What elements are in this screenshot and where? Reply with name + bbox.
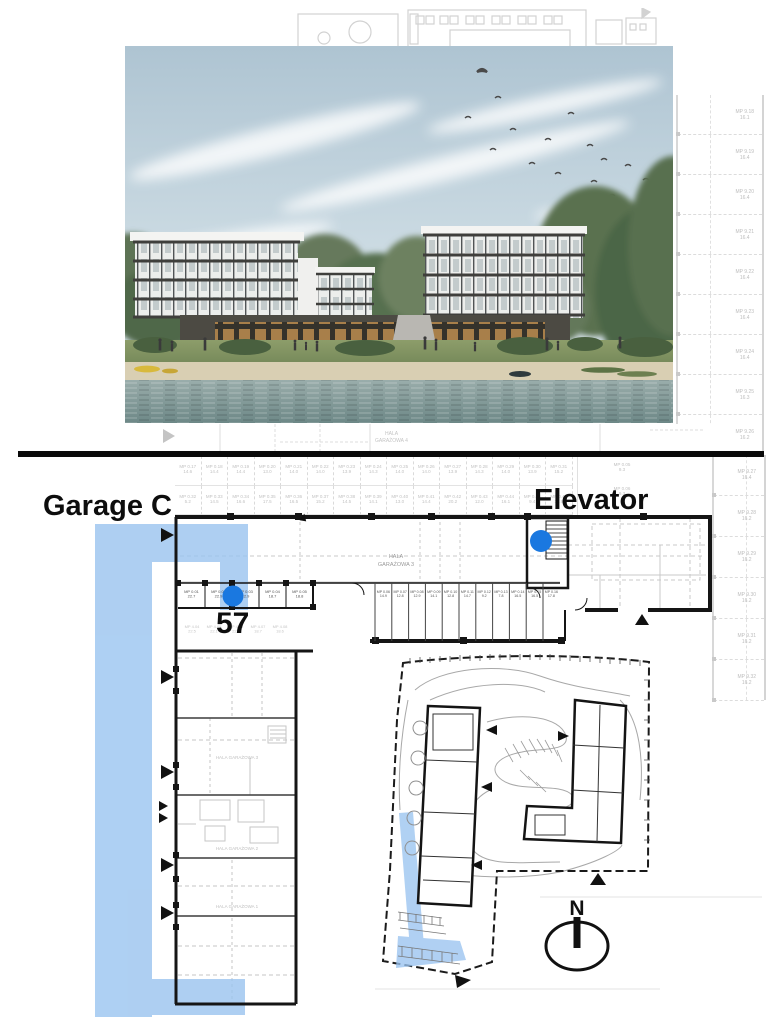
parking-space-label: MP 4.0422.5 [185, 624, 201, 634]
corridor-label-2: GARAŻOWA 3 [378, 561, 414, 568]
elevator-label: Elevator [534, 484, 648, 517]
right-building [421, 226, 587, 318]
garage-c-label: Garage C [43, 490, 172, 523]
wing-hall-label: HALA GARAŻOWA 2 [216, 845, 259, 851]
north-compass: N [546, 897, 608, 970]
space-57-label: 57 [216, 607, 249, 641]
section-divider-line [18, 451, 764, 457]
elevator-marker [530, 530, 552, 552]
left-building [130, 232, 304, 318]
parking-space-label: MP 4.0718.7 [251, 624, 267, 634]
building-rendering-photo [125, 46, 673, 423]
wing-hall-label: HALA GARAŻOWA 3 [216, 754, 259, 760]
corridor-label-1: HALA [389, 554, 404, 560]
mid-building [315, 267, 375, 318]
compass-north-label: N [569, 897, 584, 920]
parking-space-57-marker [223, 586, 244, 607]
parking-space-label: MP 4.0818.6 [273, 624, 289, 634]
wing-hall-label: HALA GARAŻOWA 1 [216, 903, 259, 909]
document-page: { "labels": { "garage": "Garage C", "ele… [0, 0, 768, 1024]
